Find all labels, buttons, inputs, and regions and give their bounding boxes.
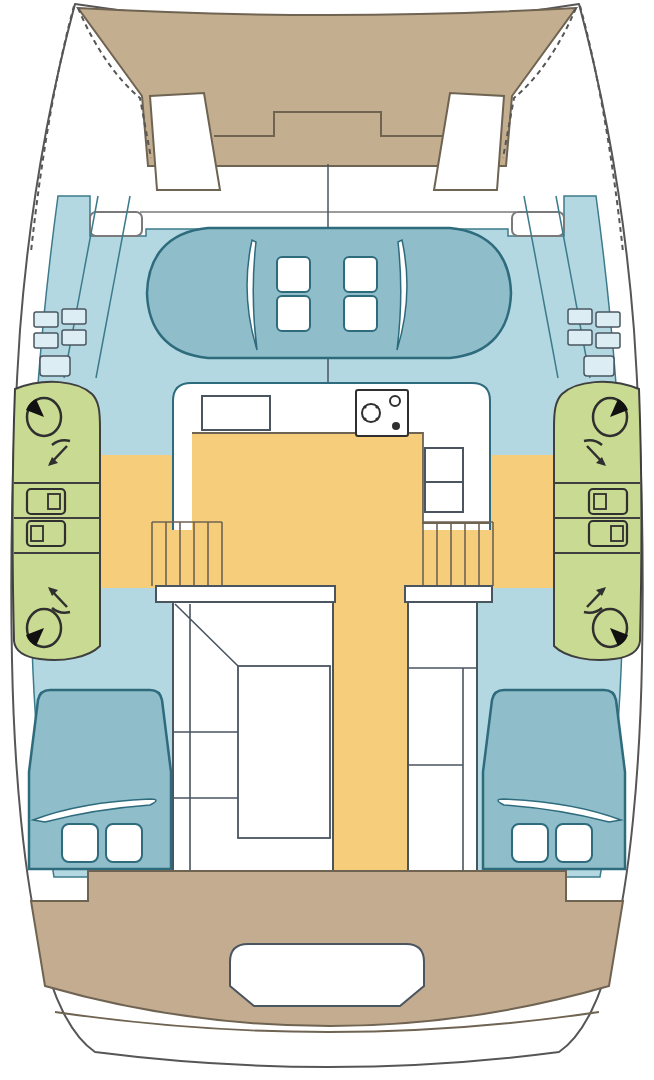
- sink-icon: [589, 521, 627, 546]
- deck-hatch: [344, 257, 377, 292]
- floor-band-lower: [100, 530, 554, 588]
- berth-ledge-port: [156, 586, 335, 602]
- refrigerator-upper: [425, 448, 463, 482]
- hull-berth-starboard: [408, 602, 477, 877]
- deck-plan-svg: [0, 0, 654, 1080]
- berth-box: [408, 602, 477, 877]
- tread: [62, 309, 86, 324]
- deck-box-starboard: [512, 212, 564, 236]
- salon-floor: [192, 433, 423, 530]
- aft-cabin-port: [29, 690, 171, 869]
- stove: [356, 390, 408, 436]
- refrigerator: [425, 448, 463, 512]
- tread: [596, 333, 620, 348]
- aft-berth: [483, 690, 625, 869]
- tread: [62, 330, 86, 345]
- hull-berth-port: [173, 602, 333, 877]
- tread: [568, 330, 592, 345]
- tread: [568, 309, 592, 324]
- aft-berth: [29, 690, 171, 869]
- burner-dot: [375, 405, 378, 408]
- pillow: [106, 824, 142, 862]
- forward-cockpit-cushion: [147, 228, 511, 358]
- berth-ledge-starboard: [405, 586, 492, 602]
- tread: [40, 356, 70, 376]
- burner-dot: [375, 417, 378, 420]
- pillow: [512, 824, 548, 862]
- deck-hatch: [344, 296, 377, 331]
- pillow: [62, 824, 98, 862]
- burner-dot: [363, 405, 366, 408]
- burner-dot: [363, 417, 366, 420]
- pillow: [556, 824, 592, 862]
- refrigerator-lower: [425, 482, 463, 512]
- sink-icon: [27, 521, 65, 546]
- center-corridor: [333, 567, 410, 877]
- tread: [596, 312, 620, 327]
- stove-burner-small-filled: [392, 422, 400, 430]
- stove-top: [356, 390, 408, 436]
- tread: [584, 356, 614, 376]
- aft-cabin-starboard: [483, 690, 625, 869]
- deck-hatch: [277, 296, 310, 331]
- galley-sink: [202, 396, 270, 430]
- tread: [34, 333, 58, 348]
- cockpit-opening: [230, 944, 424, 1006]
- heads-starboard: [554, 382, 641, 660]
- tread: [34, 312, 58, 327]
- deck-plan: [0, 0, 654, 1080]
- heads-port: [13, 382, 100, 660]
- deck-hatch: [277, 257, 310, 292]
- berth-box: [173, 602, 333, 877]
- deck-box-port: [90, 212, 142, 236]
